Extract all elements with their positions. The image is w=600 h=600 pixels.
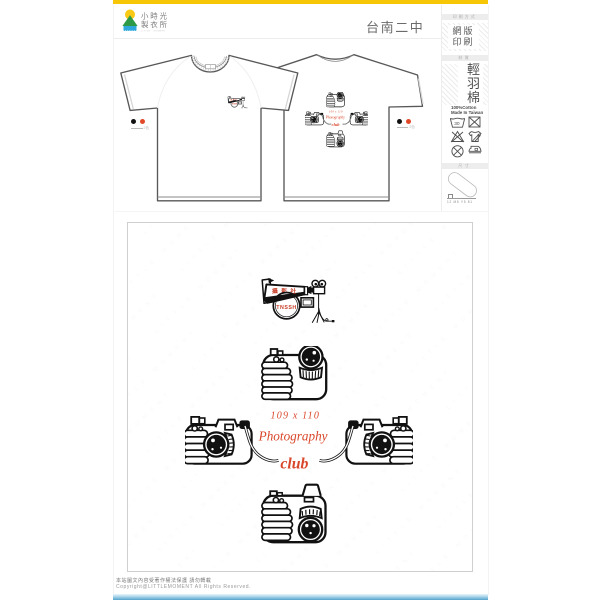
svg-text:製衣所: 製衣所 [141, 20, 169, 29]
svg-text:30: 30 [454, 121, 460, 127]
svg-text:LITTLE · MOMENT: LITTLE · MOMENT [141, 31, 166, 33]
